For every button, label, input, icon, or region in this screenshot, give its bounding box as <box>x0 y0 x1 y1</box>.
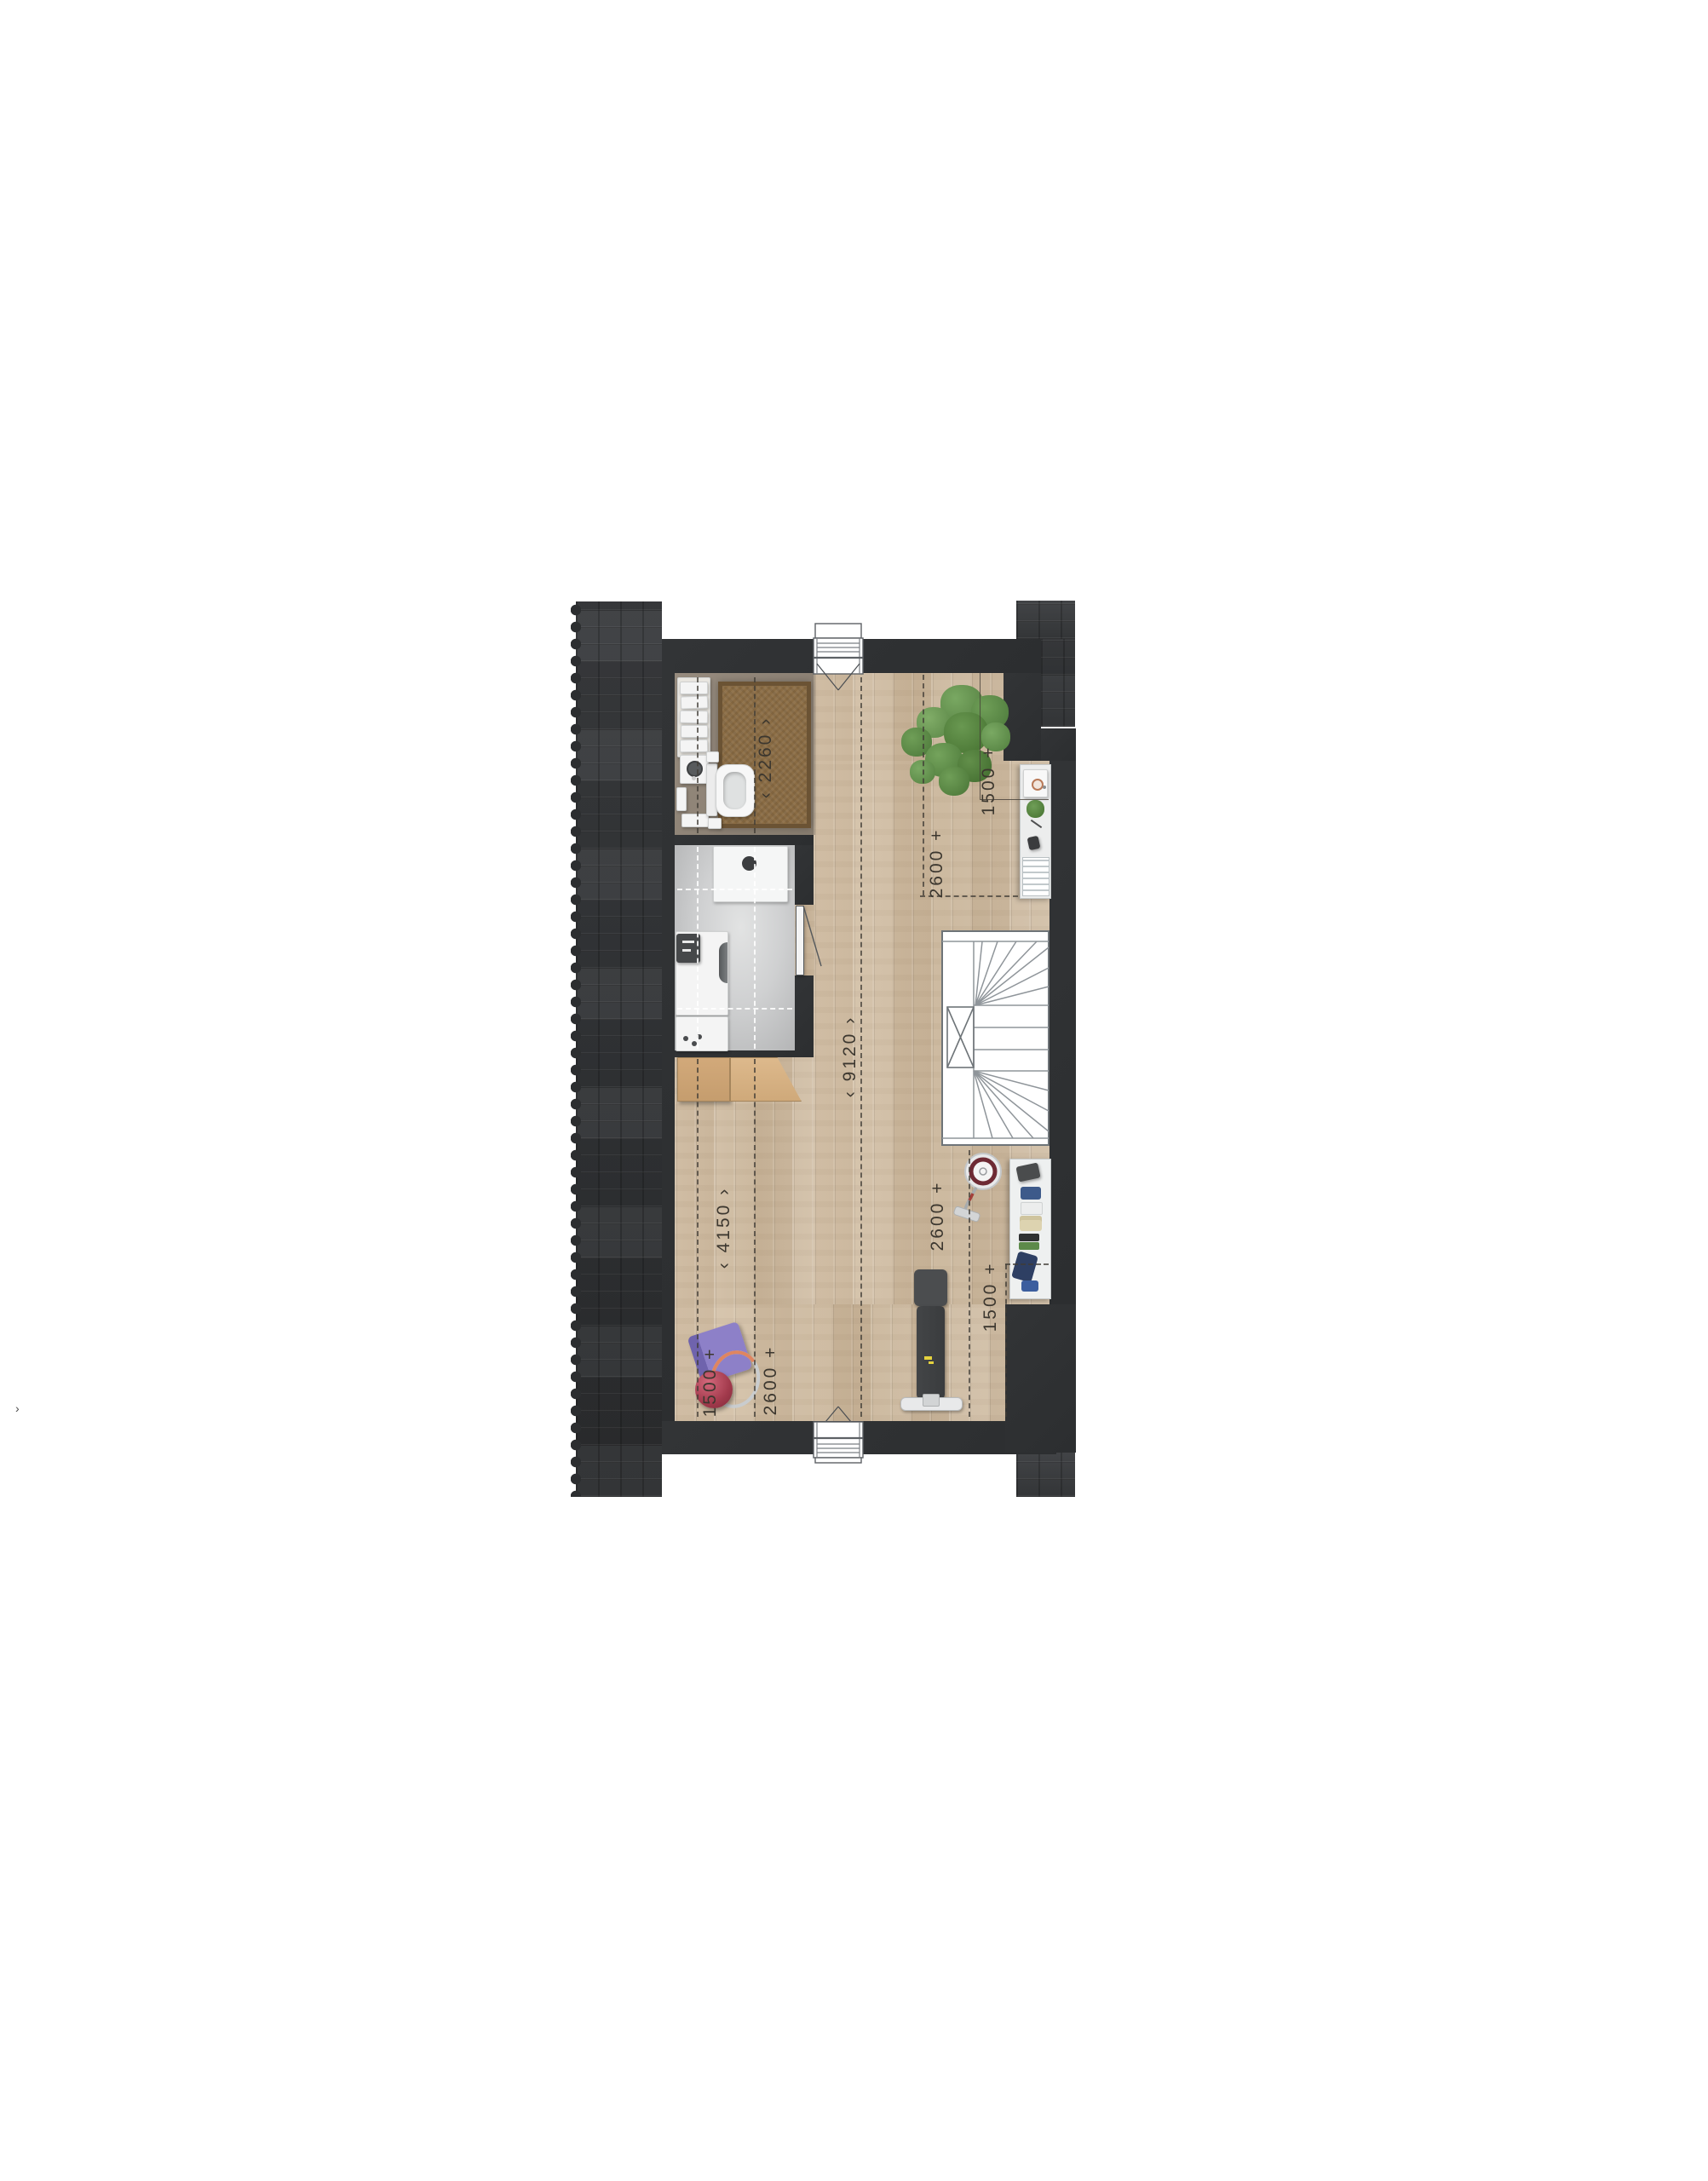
dim-left-1500: 1500 + <box>700 1347 721 1418</box>
roof-tiles-left <box>576 601 662 1497</box>
roof-tiles-bottom-right-b <box>1016 1453 1075 1497</box>
wall-bath-laundry-divider <box>675 835 815 845</box>
stairs <box>941 930 1050 1146</box>
laundry-centerline <box>677 1008 792 1010</box>
towel <box>681 725 708 738</box>
folded-towel <box>1021 1202 1043 1215</box>
slope-line-2600-left-laundry <box>754 847 756 1049</box>
laundry-table <box>713 846 788 902</box>
floorplan-page: ‹ 2260 › 1500 + 2600 + ‹ 9120 › ‹ 4150 ›… <box>0 0 1708 2181</box>
dim-right-upper-2600: 2600 + <box>927 828 947 899</box>
rolled-mat <box>1011 1251 1038 1282</box>
dim-width-4150: ‹ 4150 › <box>714 1187 734 1269</box>
folded-jeans <box>1021 1187 1041 1200</box>
dryer <box>676 1016 728 1051</box>
bath-accessory <box>681 814 709 827</box>
slope-line-2600-right-lower <box>969 1150 970 1417</box>
control-mark <box>682 941 694 943</box>
wall-right-step <box>1041 728 1076 761</box>
machine-dot-icon <box>1043 786 1046 789</box>
workout-bench-head <box>914 1269 947 1306</box>
coffee-machine <box>1023 769 1048 797</box>
towel <box>680 739 708 753</box>
towel <box>681 695 709 709</box>
bench-logo <box>929 1361 934 1364</box>
slope-line-2600-right-upper <box>923 675 924 895</box>
slope-line-2600-left <box>754 1059 756 1417</box>
dim-right-lower-2600: 2600 + <box>928 1181 948 1252</box>
washer-drum-icon <box>719 942 727 983</box>
washbasin <box>680 755 709 784</box>
control-mark <box>682 949 691 952</box>
basin-tap-icon <box>692 776 696 780</box>
laundry-centerline <box>677 889 792 890</box>
folded-towel <box>1019 1234 1039 1241</box>
roof-tiles-edge <box>571 601 581 1497</box>
wall-laundry-right-upper <box>795 845 815 905</box>
roof-window-top <box>813 623 864 693</box>
stray-chevron: › <box>15 1401 20 1415</box>
dim-nook-1500: 1500 + <box>979 745 999 816</box>
towel <box>680 682 708 694</box>
toilet-seat <box>723 772 746 809</box>
wall-bottom-right-block <box>1005 1304 1076 1453</box>
door-swing <box>796 903 830 980</box>
wall-left <box>662 639 675 1454</box>
side-desk <box>1020 764 1051 899</box>
magazine-stack <box>1022 857 1050 896</box>
desk-plant <box>1027 800 1044 818</box>
roof-tiles-top-right-b <box>1041 639 1075 727</box>
dim-bathroom-2260: ‹ 2260 › <box>756 716 776 798</box>
slope-line-1500-left-laundry <box>697 847 699 1049</box>
roof-window-bottom <box>813 1405 864 1473</box>
basin-bowl-icon <box>687 761 703 777</box>
wooden-bench-left <box>677 1057 730 1102</box>
shelf-item <box>1015 1162 1040 1182</box>
storage-shelf <box>1009 1159 1051 1299</box>
folded-item <box>1021 1280 1038 1292</box>
wall-laundry-right-lower <box>795 975 815 1057</box>
wall-laundry-bottom <box>675 1050 815 1057</box>
toilet-roll <box>706 751 719 762</box>
slope-line-1500-left-bath <box>697 677 699 833</box>
toilet-roll <box>708 818 722 829</box>
toilet <box>716 764 755 817</box>
length-line-9120 <box>860 677 862 1417</box>
machine-dot-icon <box>1032 779 1044 791</box>
plant-leaf <box>939 767 969 796</box>
slope-line-1500-right-lower-end <box>1005 1263 1049 1265</box>
barbell-rest <box>923 1394 940 1407</box>
slope-line-1500-right-lower <box>1005 1264 1007 1417</box>
desk-item <box>1027 836 1041 850</box>
dryer-knob-icon <box>683 1036 688 1041</box>
bench-logo <box>924 1356 932 1360</box>
dim-length-9120: ‹ 9120 › <box>840 1016 860 1097</box>
slope-line-1500-left <box>697 1059 699 1417</box>
bath-accessory <box>676 787 687 811</box>
vacuum-cleaner <box>952 1148 1012 1229</box>
dim-bottom-right-1500: 1500 + <box>981 1262 1001 1332</box>
bathroom-open-edge <box>814 673 815 835</box>
towel <box>680 711 708 724</box>
roof-tiles-top-right-a <box>1016 601 1075 639</box>
wall-right <box>1050 761 1076 1304</box>
dim-left-2600: 2600 + <box>761 1345 781 1416</box>
folded-towel <box>1019 1242 1039 1250</box>
workout-bench-body <box>917 1306 945 1399</box>
folded-towel <box>1020 1216 1042 1231</box>
pen <box>1031 820 1042 828</box>
